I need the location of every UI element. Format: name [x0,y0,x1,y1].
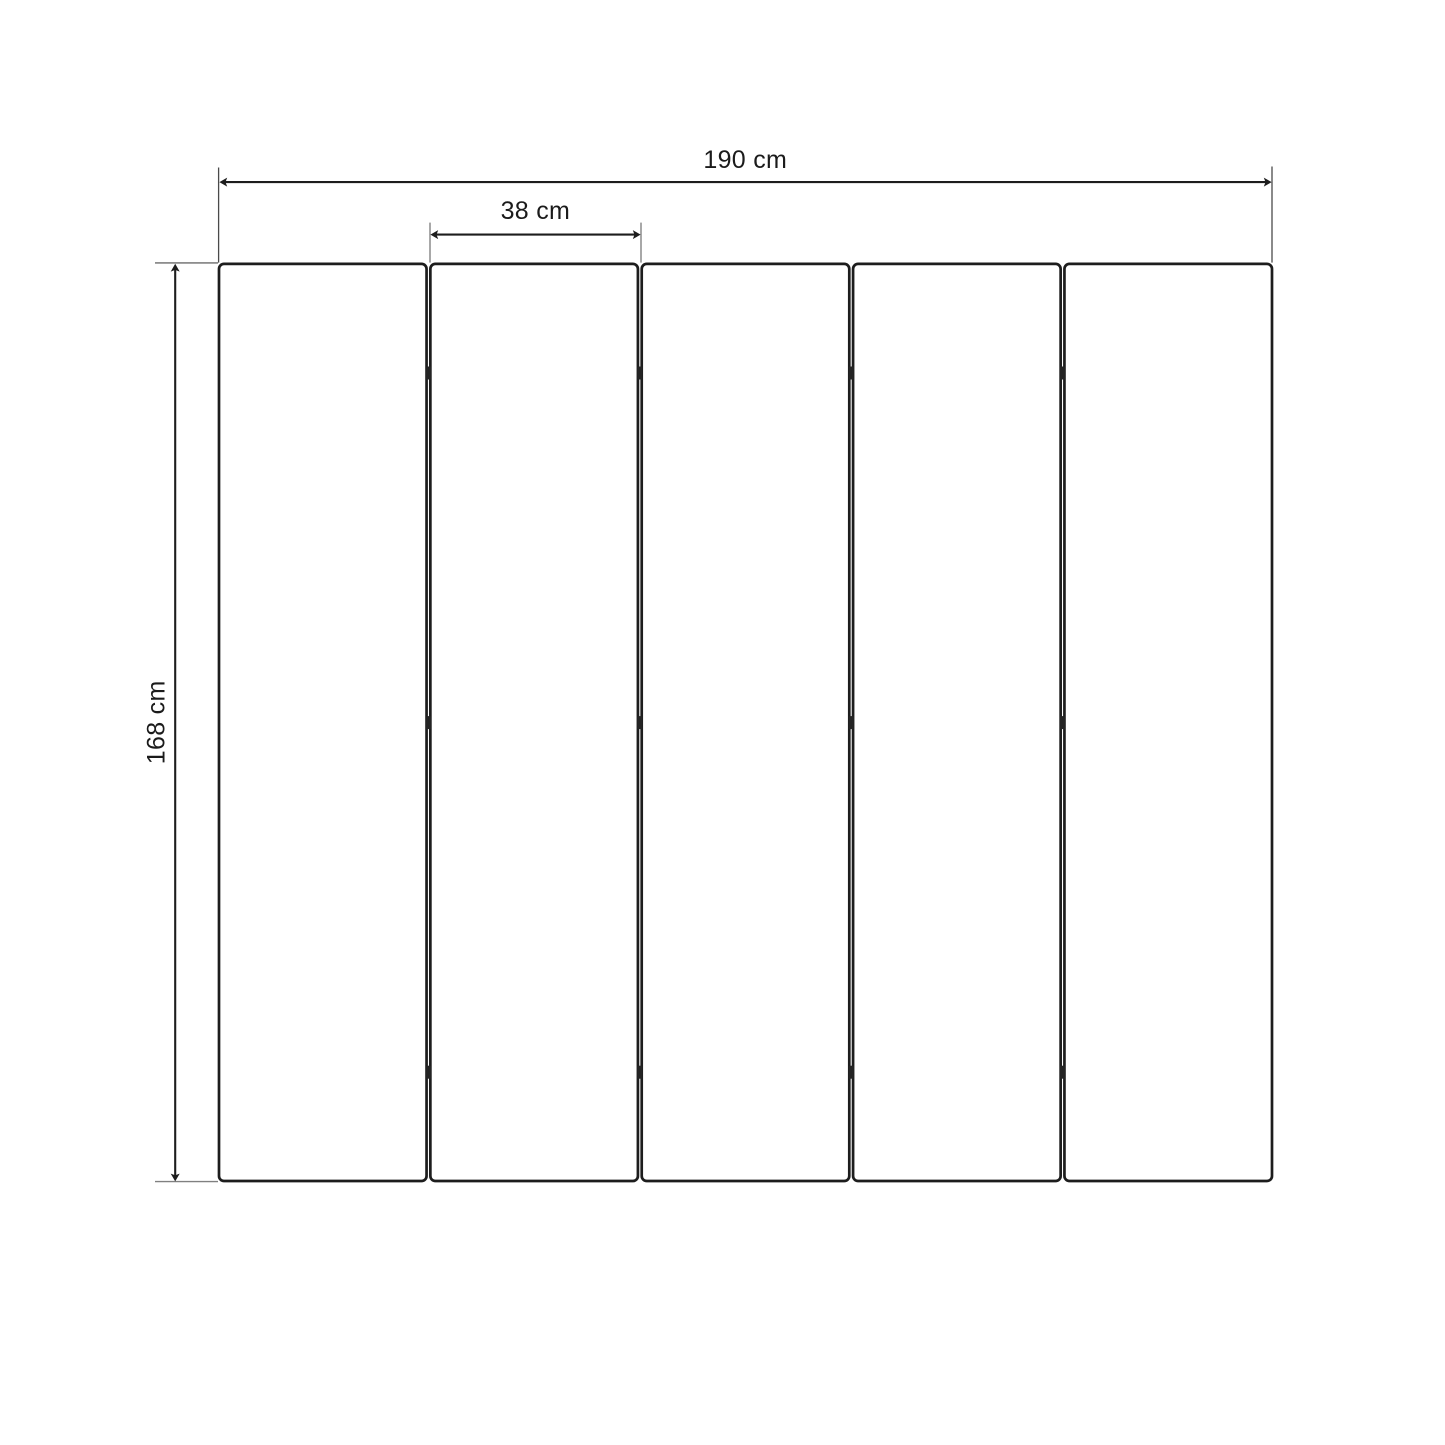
svg-text:190 cm: 190 cm [703,146,787,174]
svg-text:168 cm: 168 cm [143,680,171,764]
svg-text:38 cm: 38 cm [501,197,571,225]
